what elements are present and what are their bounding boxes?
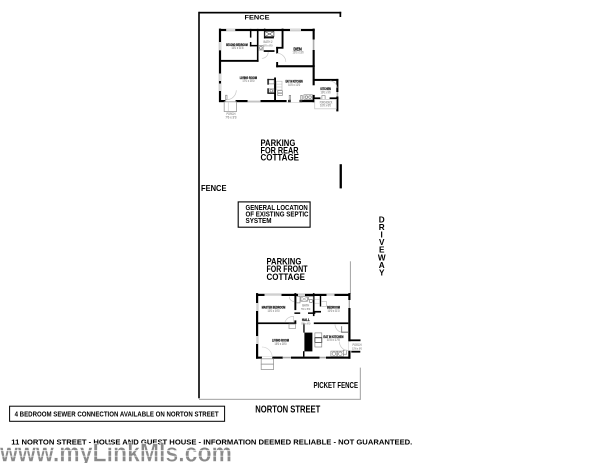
svg-text:11'0 x 17'0: 11'0 x 17'0 bbox=[327, 338, 340, 342]
svg-text:5'0 x 6'0: 5'0 x 6'0 bbox=[301, 322, 310, 326]
svg-text:PICKET FENCE: PICKET FENCE bbox=[314, 381, 359, 390]
svg-text:5'0 x 8'0: 5'0 x 8'0 bbox=[301, 307, 310, 311]
svg-text:10'0 x 6'0: 10'0 x 6'0 bbox=[320, 103, 331, 107]
svg-text:15'0 x 20'0: 15'0 x 20'0 bbox=[275, 342, 287, 346]
svg-text:10'0 x 9'0: 10'0 x 9'0 bbox=[321, 90, 331, 94]
svg-text:FENCE: FENCE bbox=[201, 183, 227, 193]
svg-text:NORTON STREET: NORTON STREET bbox=[255, 404, 320, 415]
svg-text:10'0 x 12'0: 10'0 x 12'0 bbox=[288, 83, 300, 87]
svg-text:12'6 x 5'0: 12'6 x 5'0 bbox=[352, 346, 362, 350]
svg-text:4 BEDROOM SEWER CONNECTION AVA: 4 BEDROOM SEWER CONNECTION AVAILABLE ON … bbox=[15, 412, 220, 419]
svg-text:17'0 x 15'0: 17'0 x 15'0 bbox=[242, 79, 254, 83]
svg-text:11'0 x 14'0: 11'0 x 14'0 bbox=[268, 309, 280, 313]
svg-text:10'0 x 11'0: 10'0 x 11'0 bbox=[328, 309, 340, 313]
svg-text:7'6 x 3'3: 7'6 x 3'3 bbox=[225, 115, 236, 119]
svg-text:COTTAGE: COTTAGE bbox=[261, 153, 300, 163]
svg-text:SYSTEM: SYSTEM bbox=[246, 216, 272, 225]
svg-text:Y: Y bbox=[379, 268, 385, 277]
svg-text:12'0 x 13'0: 12'0 x 13'0 bbox=[293, 51, 304, 55]
svg-text:5'0 x 8'0: 5'0 x 8'0 bbox=[264, 43, 273, 47]
svg-text:FENCE: FENCE bbox=[245, 14, 271, 21]
svg-text:www.myLinkMls.com: www.myLinkMls.com bbox=[0, 440, 232, 463]
svg-text:11'0 x 11'6: 11'0 x 11'6 bbox=[232, 46, 244, 50]
svg-text:COTTAGE: COTTAGE bbox=[267, 272, 306, 282]
